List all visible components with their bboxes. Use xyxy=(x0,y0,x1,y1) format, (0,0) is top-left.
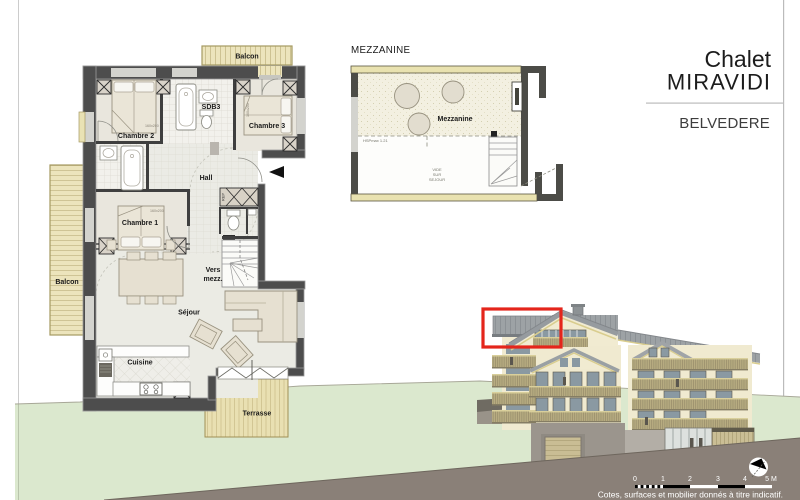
svg-text:Terrasse: Terrasse xyxy=(243,411,272,418)
svg-text:160x200: 160x200 xyxy=(145,124,159,128)
svg-text:160x200: 160x200 xyxy=(150,209,164,213)
svg-text:0: 0 xyxy=(633,476,637,483)
svg-text:MEZZANINE: MEZZANINE xyxy=(351,45,410,56)
svg-text:SEJOUR: SEJOUR xyxy=(429,177,445,182)
svg-text:2: 2 xyxy=(688,476,692,483)
svg-text:Chambre 1: Chambre 1 xyxy=(122,220,158,227)
svg-text:Séjour: Séjour xyxy=(178,310,200,317)
svg-text:3: 3 xyxy=(716,476,720,483)
svg-text:5 M: 5 M xyxy=(765,476,777,483)
svg-text:Cuisine: Cuisine xyxy=(127,360,152,367)
svg-text:Balcon: Balcon xyxy=(55,279,78,286)
svg-text:Cotes, surfaces et mobilier do: Cotes, surfaces et mobilier donnés à tit… xyxy=(598,490,783,500)
svg-text:Mezzanine: Mezzanine xyxy=(437,116,472,123)
svg-text:BELVEDERE: BELVEDERE xyxy=(679,115,770,132)
svg-text:mezz.: mezz. xyxy=(203,276,222,283)
svg-text:SDB3: SDB3 xyxy=(202,104,221,111)
svg-text:REP: REP xyxy=(221,193,226,202)
svg-text:MIRAVIDI: MIRAVIDI xyxy=(667,70,771,95)
svg-text:4: 4 xyxy=(743,476,747,483)
svg-text:Chambre 2: Chambre 2 xyxy=(118,133,154,140)
svg-text:HSPmax 1.21: HSPmax 1.21 xyxy=(363,138,388,143)
svg-text:160x200: 160x200 xyxy=(246,103,250,117)
svg-text:Hall: Hall xyxy=(200,175,213,182)
svg-text:Chalet: Chalet xyxy=(705,46,772,72)
svg-text:Balcon: Balcon xyxy=(235,54,258,61)
svg-text:Chambre 3: Chambre 3 xyxy=(249,123,285,130)
svg-text:Vers: Vers xyxy=(206,267,221,274)
svg-text:1: 1 xyxy=(661,476,665,483)
